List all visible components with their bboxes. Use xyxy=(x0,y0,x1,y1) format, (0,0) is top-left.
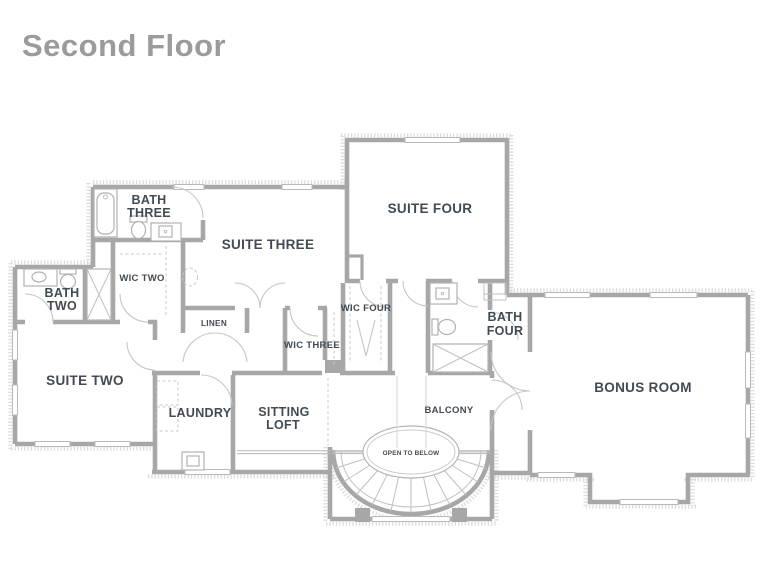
label-bath-three-2: THREE xyxy=(127,206,171,220)
label-wic-two: WIC TWO xyxy=(119,273,164,284)
bathtub-fixture xyxy=(94,189,117,237)
vanity-bath-three xyxy=(151,223,181,241)
label-balcony: BALCONY xyxy=(424,405,473,416)
label-suite-three: SUITE THREE xyxy=(222,237,315,252)
fixtures xyxy=(24,189,506,470)
hall-closet xyxy=(484,283,506,300)
vanity-bath-four xyxy=(430,283,457,304)
label-sitting-loft-1: SITTING xyxy=(258,405,309,419)
label-bath-four-1: BATH xyxy=(488,310,523,324)
toilet-bath-four xyxy=(432,319,456,335)
floor-plan-page: Second Floor xyxy=(0,0,765,565)
curved-staircase xyxy=(237,376,491,513)
floor-plan-svg: SUITE THREE SUITE FOUR SUITE TWO BONUS R… xyxy=(0,0,765,565)
wic-four-rack xyxy=(357,320,375,356)
label-bath-two-1: BATH xyxy=(45,286,80,300)
label-open-to-below: OPEN TO BELOW xyxy=(383,450,441,457)
label-wic-three: WIC THREE xyxy=(284,340,340,351)
laundry-sink xyxy=(182,452,204,470)
label-suite-two: SUITE TWO xyxy=(46,373,124,388)
shower-bath-four xyxy=(433,344,488,372)
label-sitting-loft-2: LOFT xyxy=(266,418,300,432)
shower-bath-two xyxy=(87,269,111,320)
label-bonus-room: BONUS ROOM xyxy=(594,380,692,395)
label-linen: LINEN xyxy=(201,319,227,328)
vanity-bath-two xyxy=(24,269,57,286)
label-bath-two-2: TWO xyxy=(47,299,77,313)
label-bath-four-2: FOUR xyxy=(487,324,524,338)
washer xyxy=(157,381,178,405)
label-suite-four: SUITE FOUR xyxy=(388,201,473,216)
label-wic-four: WIC FOUR xyxy=(341,303,391,314)
label-bath-three-1: BATH xyxy=(132,193,167,207)
label-laundry: LAUNDRY xyxy=(169,406,232,420)
